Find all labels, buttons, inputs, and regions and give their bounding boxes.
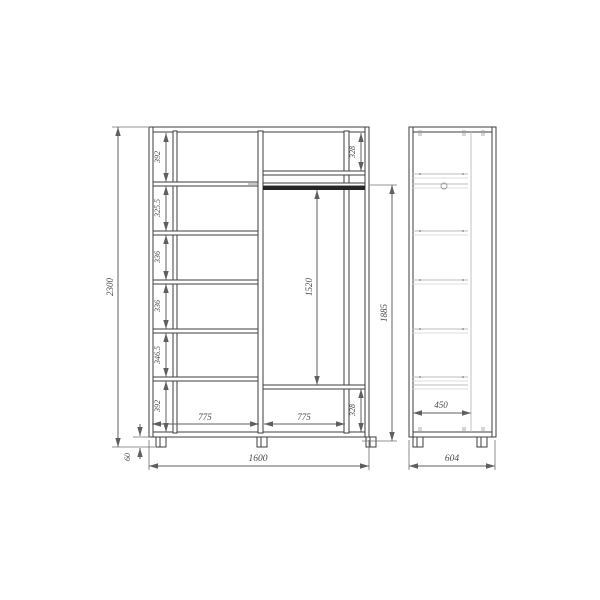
dim-label-overall-height: 2300 — [105, 278, 115, 297]
dim-plinth-height: 60 — [123, 424, 150, 461]
dim-label-gap-4: 336 — [153, 300, 162, 313]
front-view: 2300 392 325.5 336 336 346.5 392 328 328 — [105, 127, 397, 470]
wardrobe-technical-drawing: 2300 392 325.5 336 336 346.5 392 328 328 — [0, 0, 600, 600]
dim-overall-height: 2300 — [105, 127, 155, 447]
dim-inner-depth: 450 — [413, 400, 471, 413]
dim-label-gap-2: 325.5 — [153, 199, 162, 218]
side-view: 450 604 — [409, 127, 496, 470]
shelf-line — [153, 182, 258, 186]
side-hidden-shelf-lines — [412, 173, 468, 389]
dim-label-right-width: 775 — [297, 412, 311, 422]
bottom-right-shelf — [263, 385, 365, 389]
dim-hanging-space: 1520 — [304, 190, 317, 385]
front-left-wall — [149, 127, 153, 437]
dim-label-bottom-niche: 328 — [348, 404, 357, 417]
front-legs — [156, 437, 376, 447]
side-front-wall — [492, 127, 496, 437]
dim-label-overall-width: 1600 — [249, 454, 268, 464]
dim-label-hanging-space: 1520 — [304, 278, 314, 297]
side-legs — [413, 437, 487, 447]
dim-label-left-width: 775 — [198, 412, 212, 422]
hanging-rod — [263, 186, 365, 190]
hanging-rod-support — [263, 183, 365, 186]
side-fastener-ticks — [419, 130, 484, 432]
dim-label-overall-depth: 604 — [445, 454, 460, 464]
dim-label-right-inner-height: 1885 — [379, 304, 389, 323]
shelf-line — [153, 377, 258, 381]
front-right-wall — [365, 127, 369, 437]
top-right-shelf — [263, 171, 365, 175]
dim-label-inner-depth: 450 — [434, 400, 448, 410]
side-back-wall — [409, 127, 413, 437]
dim-label-gap-1: 392 — [153, 151, 162, 164]
side-bottom-panel — [409, 432, 496, 437]
dim-label-gap-3: 336 — [153, 251, 162, 264]
shelf-line — [153, 231, 258, 235]
dim-label-gap-5: 346.5 — [153, 346, 162, 365]
drawing-canvas: 2300 392 325.5 336 336 346.5 392 328 328 — [0, 0, 600, 600]
shelf-line — [153, 329, 258, 333]
front-center-divider — [258, 131, 263, 433]
dim-label-plinth-height: 60 — [123, 453, 132, 461]
dim-section-widths: 775 775 — [152, 412, 345, 424]
dim-label-gap-6: 392 — [153, 400, 162, 413]
side-top-panel — [409, 127, 496, 132]
shelf-line — [153, 280, 258, 284]
dim-label-top-niche: 328 — [348, 146, 357, 159]
